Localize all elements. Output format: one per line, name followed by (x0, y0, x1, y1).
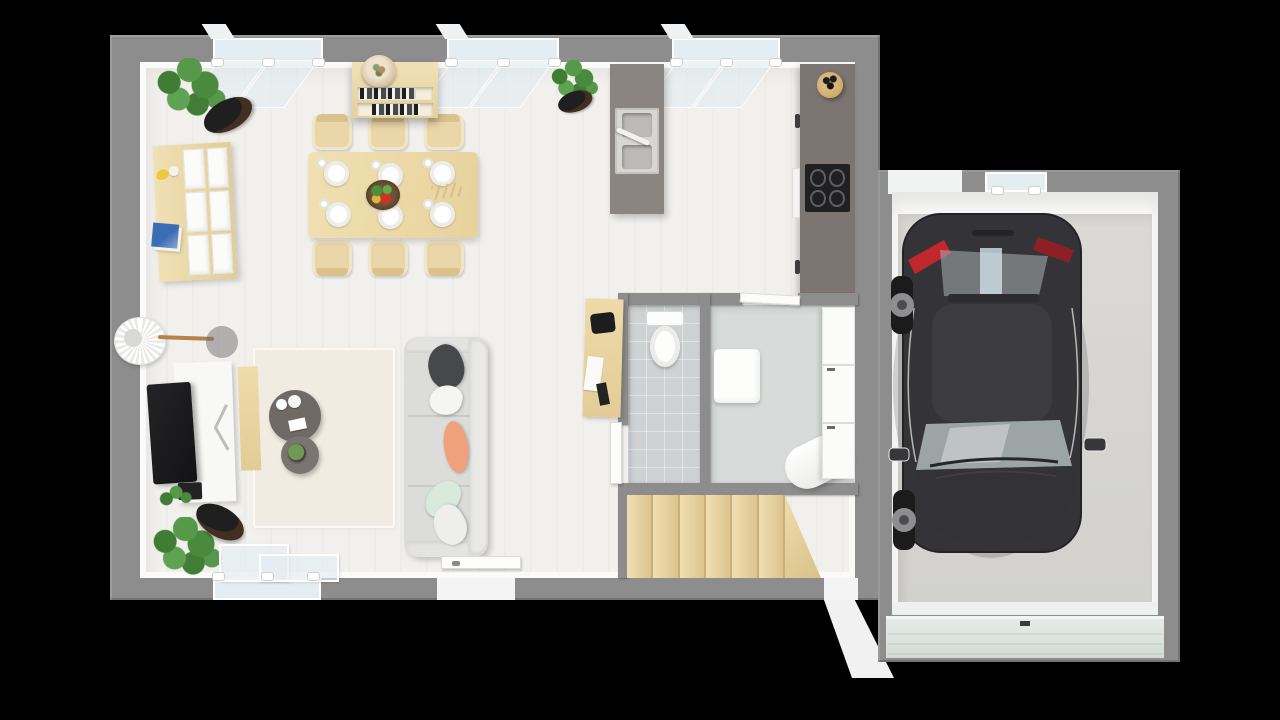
window-handle (211, 58, 224, 67)
interior-wall (700, 293, 710, 495)
sink-basin (622, 145, 652, 169)
window-handle (720, 58, 733, 67)
chair (312, 240, 352, 276)
wc-door (610, 422, 622, 484)
books (360, 88, 416, 99)
decor-vase (362, 55, 396, 87)
window-handle (261, 572, 274, 581)
wall-shelf (352, 62, 438, 118)
chair (424, 114, 464, 150)
window-handle (670, 58, 683, 67)
plate (324, 161, 349, 186)
toilet-bowl (650, 326, 680, 367)
car (888, 208, 1118, 564)
magazine-rack (151, 223, 179, 249)
stair-step (706, 495, 732, 578)
burner (829, 190, 845, 208)
chair (368, 240, 408, 276)
area-rug (253, 348, 395, 528)
sideboard-door (187, 234, 210, 275)
burner (810, 169, 826, 187)
sideboard-door (183, 148, 206, 189)
front-door (441, 556, 521, 569)
window-top-3 (672, 38, 780, 62)
staircase (627, 495, 785, 578)
car-mirror-right (1084, 438, 1106, 451)
burner (829, 169, 845, 187)
books (372, 104, 420, 115)
desk-gadget (596, 382, 610, 405)
tv-stand-bracket (214, 426, 230, 450)
car-trunk-handle (972, 230, 1014, 236)
tv-area (145, 356, 266, 512)
stair-step (627, 495, 653, 578)
potted-plant (152, 58, 254, 138)
window-handle (312, 58, 325, 67)
sideboard-doors (183, 147, 234, 275)
decor-egg (169, 166, 180, 177)
kitchen-sink (615, 108, 659, 174)
window-handle (1028, 186, 1041, 195)
tv-stand-bracket (214, 404, 228, 429)
front-door-opening (437, 578, 515, 600)
small-plant (154, 482, 194, 513)
garage-side-door-opening (888, 170, 962, 194)
cabinet-shelf-line (823, 364, 854, 366)
interior-wall (618, 483, 858, 495)
window-handle (445, 58, 458, 67)
car-mirror-left (889, 448, 909, 461)
utensil-basket (817, 72, 843, 98)
sofa-armrest (406, 541, 470, 557)
utility-cabinet (822, 307, 855, 479)
sideboard-door (206, 147, 229, 188)
toilet (646, 311, 684, 369)
sideboard-door (208, 190, 231, 231)
appliance-front (792, 168, 800, 218)
stair-step (680, 495, 706, 578)
sideboard-door (185, 191, 208, 232)
plate (326, 202, 351, 227)
fruit-bowl (366, 180, 400, 210)
car-wheel-hub (899, 515, 909, 525)
washing-machine (714, 349, 760, 403)
car-wheel-hub (897, 300, 907, 310)
chair (368, 114, 408, 150)
sofa-backrest (468, 341, 486, 553)
burner (810, 190, 826, 208)
car-roof (932, 304, 1052, 422)
cabinet-handle (827, 426, 835, 429)
car-spoiler (948, 294, 1040, 302)
potted-plant (548, 60, 617, 114)
window-handle (991, 186, 1004, 195)
stair-step (732, 495, 758, 578)
cooktop (805, 164, 850, 212)
garage-door-handle (1020, 621, 1030, 626)
side-opening (824, 578, 858, 600)
chair (312, 114, 352, 150)
floor-lamp-base (206, 326, 238, 358)
window-top-2 (447, 38, 559, 62)
desk-chair (590, 312, 616, 335)
kitchen-counter (800, 64, 855, 302)
window-handle (212, 572, 225, 581)
sideboard-door (211, 233, 234, 274)
car-rear-glass-stripe (980, 248, 1002, 300)
desk (582, 299, 623, 418)
floor-lamp-shade (114, 317, 166, 365)
window-handle (262, 58, 275, 67)
stair-step (653, 495, 679, 578)
plate (430, 202, 455, 227)
sofa-seam (408, 415, 470, 417)
chair (424, 240, 464, 276)
cabinet-handle (795, 114, 800, 128)
interior-wall (798, 293, 858, 305)
sideboard (152, 142, 237, 282)
television (147, 382, 198, 485)
toilet-tank (646, 311, 684, 326)
decor-vase (276, 399, 287, 410)
sofa (404, 337, 488, 557)
window-handle (769, 58, 782, 67)
window-handle (497, 58, 510, 67)
floor-plan-stage (0, 0, 1280, 720)
cabinet-handle (827, 368, 835, 371)
decor-vase (288, 395, 301, 408)
succulent-bowl (288, 444, 306, 462)
window-handle (548, 58, 561, 67)
garage-window (985, 172, 1047, 192)
kitchen-island (610, 64, 664, 214)
garage-door-threshold (892, 602, 1158, 615)
interior-wall (618, 293, 742, 305)
tv-stand-wood-door (238, 366, 262, 471)
window-handle (307, 572, 320, 581)
stair-step (759, 495, 785, 578)
cabinet-shelf-line (823, 422, 854, 424)
cabinet-handle (795, 260, 800, 274)
sliding-window-bottom (213, 578, 321, 600)
garage-door (886, 616, 1164, 658)
